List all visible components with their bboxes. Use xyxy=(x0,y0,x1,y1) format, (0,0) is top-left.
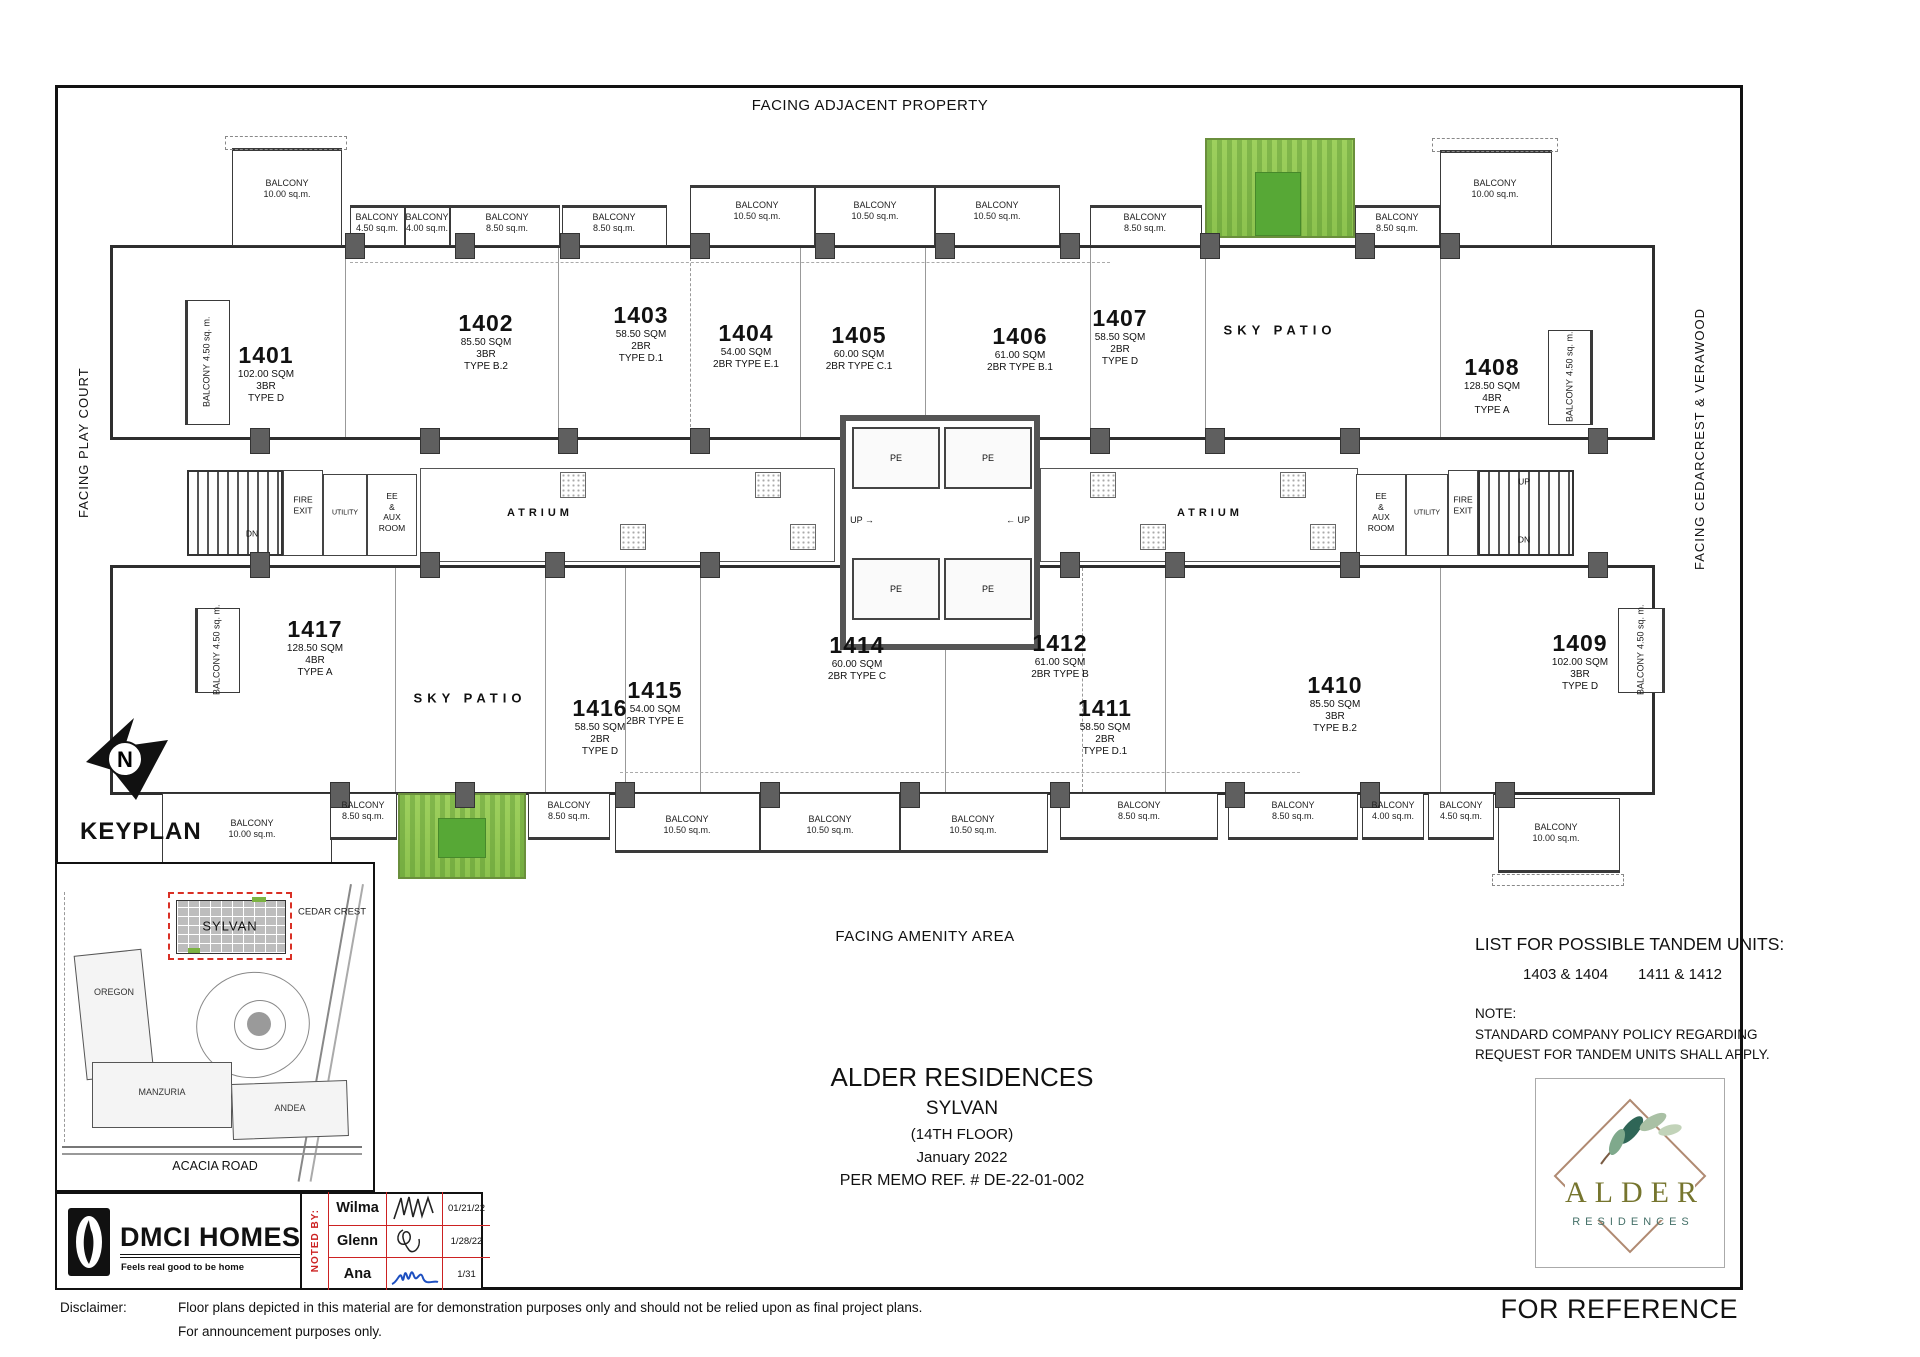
column xyxy=(1495,782,1515,808)
unit-1412-label: 141261.00 SQM2BR TYPE B xyxy=(1031,630,1089,681)
note-line-1: STANDARD COMPANY POLICY REGARDING xyxy=(1475,1027,1758,1042)
balcony-label: BALCONY8.50 sq.m. xyxy=(592,212,635,235)
map-oregon-label: OREGON xyxy=(94,987,134,997)
note-line-2: REQUEST FOR TANDEM UNITS SHALL APPLY. xyxy=(1475,1047,1770,1062)
balcony-label: BALCONY10.00 sq.m. xyxy=(263,178,310,201)
elevator-pe-label: PE xyxy=(982,453,994,463)
svg-text:N: N xyxy=(117,747,133,772)
balcony-label: BALCONY8.50 sq.m. xyxy=(1123,212,1166,235)
column xyxy=(1225,782,1245,808)
utility-label-right: UTILITY xyxy=(1414,510,1440,517)
balcony-label: BALCONY4.00 sq.m. xyxy=(1371,800,1414,823)
atrium-label-left: ATRIUM xyxy=(507,507,573,519)
map-boundary-dashed xyxy=(64,892,66,1142)
disclaimer-label: Disclaimer: xyxy=(60,1300,127,1315)
unit-1402-label: 140285.50 SQM3BRTYPE B.2 xyxy=(458,310,513,372)
signature-wilma-icon xyxy=(391,1193,439,1223)
map-sylvan-label: SYLVAN xyxy=(202,919,257,934)
column xyxy=(815,233,835,259)
balcony-label: BALCONY 4.50 sq. m. xyxy=(1564,332,1575,422)
dmci-tagline: Feels real good to be home xyxy=(121,1262,244,1273)
column xyxy=(760,782,780,808)
balcony-label: BALCONY8.50 sq.m. xyxy=(1117,800,1160,823)
unit-divider xyxy=(1440,248,1441,437)
column xyxy=(1340,428,1360,454)
column xyxy=(420,552,440,578)
noted-by-date: 1/31 xyxy=(442,1257,490,1290)
sky-patio-label-top: SKY PATIO xyxy=(1224,323,1337,338)
atrium-label-right: ATRIUM xyxy=(1177,507,1243,519)
balcony-label: BALCONY10.50 sq.m. xyxy=(851,200,898,223)
map-acacia-road-label: ACACIA ROAD xyxy=(172,1159,257,1173)
column xyxy=(560,233,580,259)
tandem-pair-2: 1411 & 1412 xyxy=(1638,966,1722,983)
fire-exit-label-right: FIREEXIT xyxy=(1453,494,1472,515)
signature xyxy=(386,1257,442,1290)
atrium-planter xyxy=(1140,524,1166,550)
projection-dashed xyxy=(1492,874,1624,886)
fire-exit-label-left: FIREEXIT xyxy=(293,494,312,515)
unit-divider xyxy=(395,568,396,792)
elevator-pe-label: PE xyxy=(890,584,902,594)
balcony-label: BALCONY10.50 sq.m. xyxy=(973,200,1020,223)
tandem-pair-1: 1403 & 1404 xyxy=(1523,966,1608,983)
projection-dashed xyxy=(225,136,347,150)
elevator-pe-label: PE xyxy=(890,453,902,463)
unit-divider xyxy=(800,248,801,437)
dmci-logo-icon xyxy=(68,1208,110,1276)
tandem-unit-divider xyxy=(690,248,692,437)
column xyxy=(1205,428,1225,454)
up-arrow-icon: → xyxy=(865,515,874,525)
unit-divider xyxy=(1165,568,1166,792)
balcony-label: BALCONY8.50 sq.m. xyxy=(341,800,384,823)
map-oregon-building xyxy=(74,949,155,1080)
signature-ana-icon xyxy=(390,1259,440,1289)
elevator-pe-label: PE xyxy=(982,584,994,594)
unit-1401-label: 1401102.00 SQM3BRTYPE D xyxy=(238,342,294,404)
column xyxy=(1340,552,1360,578)
north-arrow-icon: N xyxy=(78,712,174,808)
facing-bottom-label: FACING AMENITY AREA xyxy=(835,928,1014,945)
noted-by-date: 1/28/22 xyxy=(442,1225,490,1258)
floor-plan-sheet: FACING ADJACENT PROPERTY FACING PLAY COU… xyxy=(0,0,1920,1357)
noted-by-header: NOTED BY: xyxy=(302,1192,328,1290)
column xyxy=(420,428,440,454)
sky-patio-garden-bottom-inner xyxy=(438,818,486,858)
alder-residences-logo-icon: ALDER RESIDENCES xyxy=(1535,1078,1725,1268)
unit-1414-label: 141460.00 SQM2BR TYPE C xyxy=(828,632,886,683)
map-road-line xyxy=(62,1146,362,1148)
unit-1416-label: 141658.50 SQM2BRTYPE D xyxy=(572,695,627,757)
column xyxy=(545,552,565,578)
signature xyxy=(386,1192,442,1225)
column xyxy=(1200,233,1220,259)
atrium-planter xyxy=(755,472,781,498)
unit-divider xyxy=(1090,248,1091,437)
up-label-right: ← UP xyxy=(1006,515,1030,525)
unit-1405-label: 140560.00 SQM2BR TYPE C.1 xyxy=(826,322,893,373)
balcony-label: BALCONY10.50 sq.m. xyxy=(949,814,996,837)
alder-sub-wordmark: RESIDENCES xyxy=(1572,1216,1694,1228)
facing-top-label: FACING ADJACENT PROPERTY xyxy=(752,97,989,114)
tandem-units-heading: LIST FOR POSSIBLE TANDEM UNITS: xyxy=(1475,934,1784,955)
sky-patio-garden-top-inner xyxy=(1255,172,1301,236)
column xyxy=(250,552,270,578)
dmci-wordmark: DMCI HOMES xyxy=(120,1222,301,1258)
atrium-planter xyxy=(1090,472,1116,498)
sky-patio-label-bottom: SKY PATIO xyxy=(414,691,527,706)
noted-by-name: Glenn xyxy=(328,1225,386,1258)
unit-divider xyxy=(925,248,926,437)
column xyxy=(690,233,710,259)
column xyxy=(690,428,710,454)
unit-1406-label: 140661.00 SQM2BR TYPE B.1 xyxy=(987,323,1053,374)
balcony-label: BALCONY10.50 sq.m. xyxy=(733,200,780,223)
unit-divider xyxy=(558,248,559,437)
balcony-label: BALCONY8.50 sq.m. xyxy=(1375,212,1418,235)
signature xyxy=(386,1225,442,1258)
column xyxy=(345,233,365,259)
atrium-planter xyxy=(1310,524,1336,550)
disclaimer-line-2: For announcement purposes only. xyxy=(178,1324,382,1339)
column xyxy=(900,782,920,808)
column xyxy=(1060,552,1080,578)
ee-aux-label-right: EE&AUXROOM xyxy=(1368,491,1394,534)
balcony-label: BALCONY10.50 sq.m. xyxy=(806,814,853,837)
setback-line xyxy=(620,772,1300,773)
unit-divider xyxy=(345,248,346,437)
unit-1410-label: 141085.50 SQM3BRTYPE B.2 xyxy=(1307,672,1362,734)
balcony-label: BALCONY 4.50 sq. m. xyxy=(201,317,212,407)
column xyxy=(455,233,475,259)
unit-1407-label: 140758.50 SQM2BRTYPE D xyxy=(1092,305,1147,367)
memo-reference: PER MEMO REF. # DE-22-01-002 xyxy=(840,1172,1085,1190)
balcony-label: BALCONY8.50 sq.m. xyxy=(1271,800,1314,823)
balcony-label: BALCONY4.00 sq.m. xyxy=(405,212,448,235)
stairs-left xyxy=(187,470,283,556)
noted-by-table: NOTED BY: Wilma 01/21/22 Glenn 1/28/22 A… xyxy=(300,1192,483,1290)
unit-1404-label: 140454.00 SQM2BR TYPE E.1 xyxy=(713,320,779,371)
up-arrow-icon: ← xyxy=(1006,515,1015,525)
column xyxy=(935,233,955,259)
alder-wordmark: ALDER xyxy=(1565,1176,1705,1209)
facing-right-label: FACING CEDARCREST & VERAWOOD xyxy=(1692,290,1707,570)
unit-divider xyxy=(700,568,701,792)
balcony-label: BALCONY4.50 sq.m. xyxy=(355,212,398,235)
atrium-planter xyxy=(790,524,816,550)
balcony-label: BALCONY8.50 sq.m. xyxy=(485,212,528,235)
logo-leaf-icon xyxy=(1657,1122,1683,1138)
building-name: SYLVAN xyxy=(926,1098,998,1120)
facing-left-label: FACING PLAY COURT xyxy=(76,348,91,518)
map-andea-label: ANDEA xyxy=(274,1103,305,1113)
balcony-label: BALCONY10.00 sq.m. xyxy=(1471,178,1518,201)
column xyxy=(1440,233,1460,259)
balcony-label: BALCONY10.00 sq.m. xyxy=(228,818,275,841)
atrium-planter xyxy=(560,472,586,498)
signature-glenn-icon xyxy=(391,1226,439,1256)
dn-label-right: DN xyxy=(1518,535,1530,546)
balcony-label: BALCONY10.50 sq.m. xyxy=(663,814,710,837)
ee-aux-label-left: EE&AUXROOM xyxy=(379,491,405,534)
column xyxy=(250,428,270,454)
unit-1409-label: 1409102.00 SQM3BRTYPE D xyxy=(1552,630,1608,692)
disclaimer-line-1: Floor plans depicted in this material ar… xyxy=(178,1300,922,1315)
unit-1417-label: 1417128.50 SQM4BRTYPE A xyxy=(287,616,343,678)
unit-1411-label: 141158.50 SQM2BRTYPE D.1 xyxy=(1078,695,1132,757)
noted-by-name: Ana xyxy=(328,1257,386,1290)
note-label: NOTE: xyxy=(1475,1006,1516,1021)
column xyxy=(615,782,635,808)
balcony-label: BALCONY10.00 sq.m. xyxy=(1532,822,1579,845)
up-label-stairs-right: UP xyxy=(1518,477,1530,488)
column xyxy=(1165,552,1185,578)
setback-line xyxy=(350,262,1110,263)
unit-divider xyxy=(1205,248,1206,437)
column xyxy=(1060,233,1080,259)
projection-dashed xyxy=(1432,138,1558,152)
floor-label: (14TH FLOOR) xyxy=(911,1126,1014,1143)
noted-by-name: Wilma xyxy=(328,1192,386,1225)
noted-by-date: 01/21/22 xyxy=(442,1192,490,1225)
utility-label-left: UTILITY xyxy=(332,510,358,517)
balcony-label: BALCONY 4.50 sq. m. xyxy=(211,605,222,695)
column xyxy=(700,552,720,578)
unit-1415-label: 141554.00 SQM2BR TYPE E xyxy=(626,677,684,728)
project-title: ALDER RESIDENCES xyxy=(831,1062,1094,1093)
balcony-label: BALCONY 4.50 sq. m. xyxy=(1635,605,1646,695)
map-road-line xyxy=(62,1153,362,1155)
unit-divider xyxy=(1440,568,1441,792)
atrium-planter xyxy=(1280,472,1306,498)
column xyxy=(1588,552,1608,578)
up-label-left: UP → xyxy=(850,515,874,525)
issue-date: January 2022 xyxy=(917,1149,1008,1166)
unit-divider xyxy=(545,568,546,792)
balcony-label: BALCONY4.50 sq.m. xyxy=(1439,800,1482,823)
map-cedar-crest-label: CEDAR CREST xyxy=(298,907,366,918)
column xyxy=(1355,233,1375,259)
keyplan-title: KEYPLAN xyxy=(80,818,202,846)
column xyxy=(558,428,578,454)
balcony-label: BALCONY8.50 sq.m. xyxy=(547,800,590,823)
dn-label-left: DN xyxy=(246,529,258,540)
for-reference-label: FOR REFERENCE xyxy=(1500,1294,1738,1325)
atrium-planter xyxy=(620,524,646,550)
map-manzuria-label: MANZURIA xyxy=(139,1087,186,1097)
unit-1403-label: 140358.50 SQM2BRTYPE D.1 xyxy=(613,302,668,364)
column xyxy=(455,782,475,808)
map-amenity-circle xyxy=(247,1012,271,1036)
column xyxy=(1050,782,1070,808)
column xyxy=(1588,428,1608,454)
column xyxy=(1090,428,1110,454)
unit-1408-label: 1408128.50 SQM4BRTYPE A xyxy=(1464,354,1520,416)
